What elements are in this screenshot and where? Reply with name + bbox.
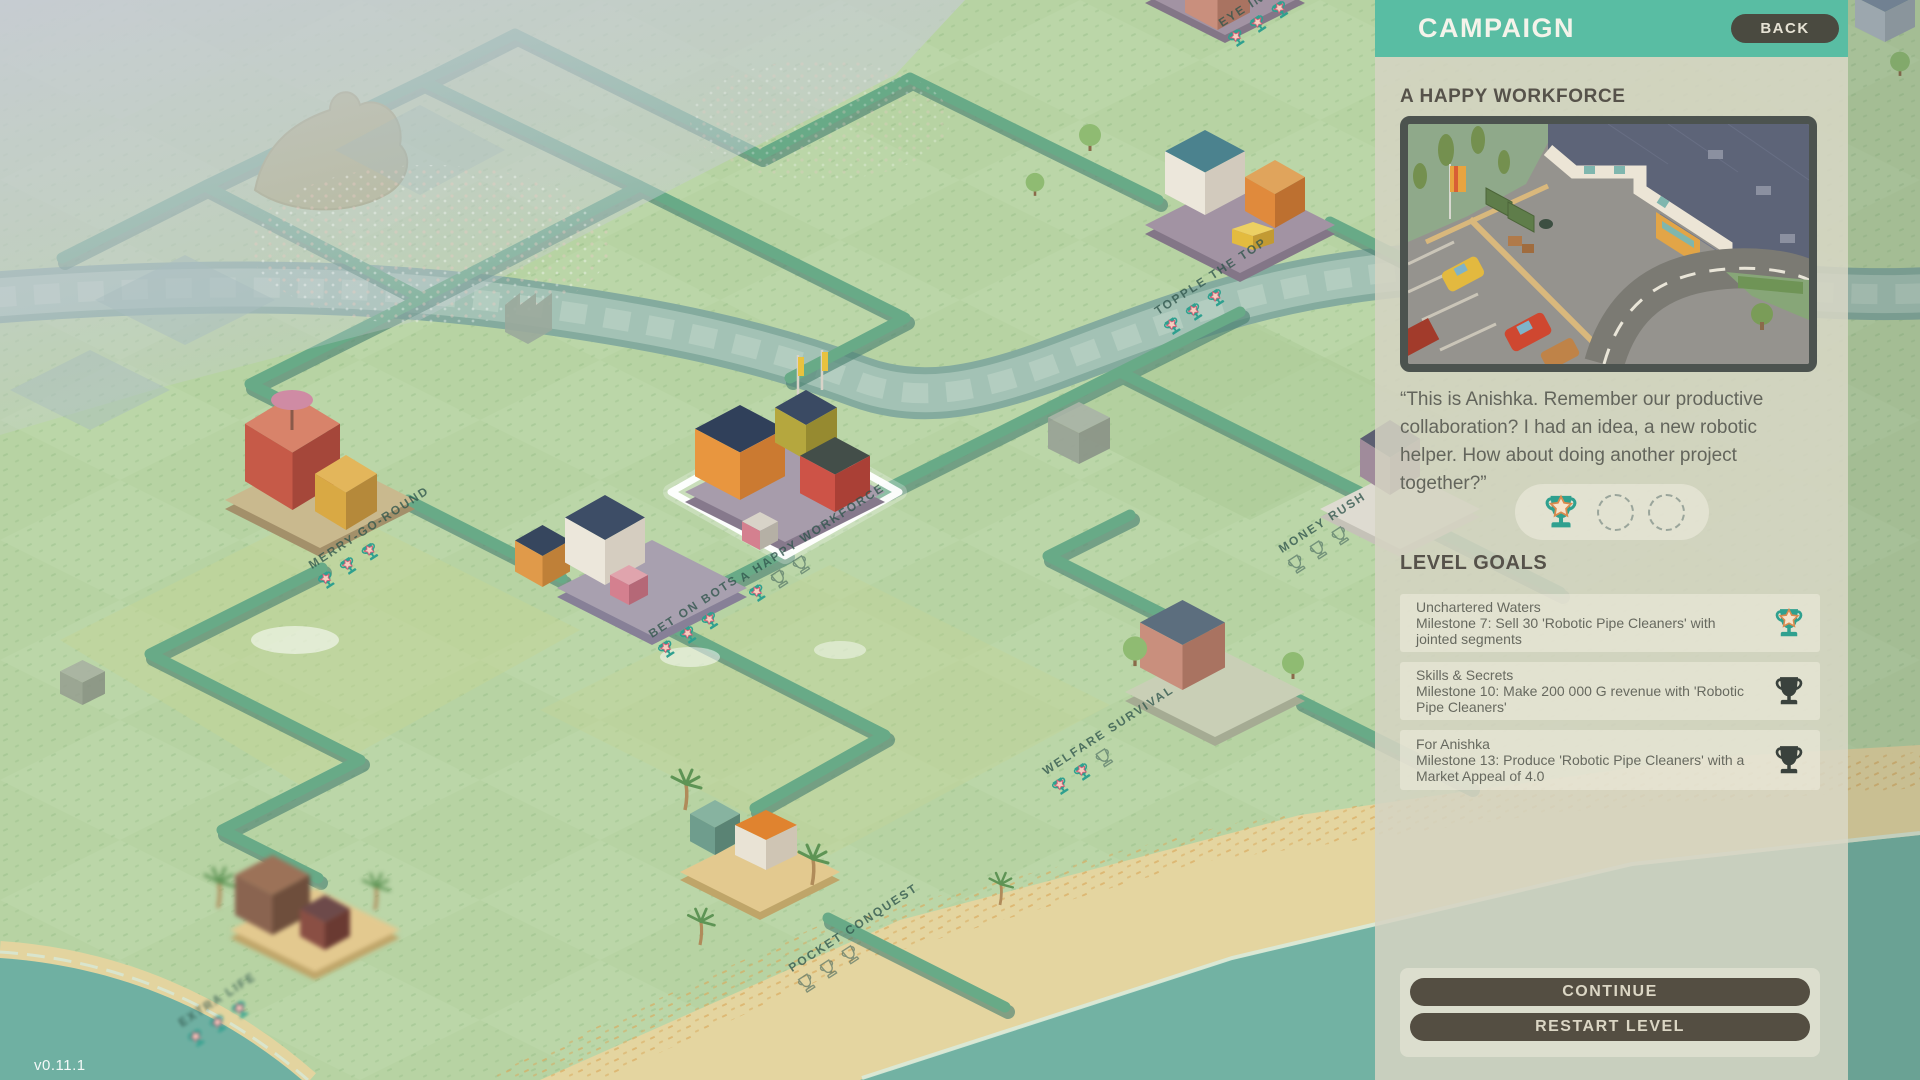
goal-trophy-icon <box>1770 741 1808 779</box>
goal-card: Skills & Secrets Milestone 10: Make 200 … <box>1400 662 1820 720</box>
goal-description: Milestone 13: Produce 'Robotic Pipe Clea… <box>1416 752 1760 784</box>
level-preview-image <box>1400 116 1817 372</box>
goal-description: Milestone 10: Make 200 000 G revenue wit… <box>1416 683 1760 715</box>
goal-description: Milestone 7: Sell 30 'Robotic Pipe Clean… <box>1416 615 1760 647</box>
goal-title: Skills & Secrets <box>1416 667 1760 683</box>
level-title: A HAPPY WORKFORCE <box>1400 86 1626 108</box>
campaign-panel: CAMPAIGN BACK A HAPPY WORKFORCE <box>1375 0 1848 1080</box>
trophy-empty-slot <box>1648 494 1685 531</box>
goal-card: Unchartered Waters Milestone 7: Sell 30 … <box>1400 594 1820 652</box>
level-goals-heading: LEVEL GOALS <box>1400 552 1547 575</box>
trophy-empty-slot <box>1597 494 1634 531</box>
level-trophy-progress <box>1515 484 1709 540</box>
continue-button[interactable]: CONTINUE <box>1410 978 1810 1006</box>
version-label: v0.11.1 <box>34 1057 86 1074</box>
trophy-earned-icon <box>1539 490 1583 534</box>
back-button[interactable]: BACK <box>1731 14 1839 43</box>
goal-trophy-icon <box>1770 672 1808 710</box>
campaign-title: CAMPAIGN <box>1418 13 1575 44</box>
restart-level-button[interactable]: RESTART LEVEL <box>1410 1013 1810 1041</box>
goal-title: For Anishka <box>1416 736 1760 752</box>
goal-card: For Anishka Milestone 13: Produce 'Robot… <box>1400 730 1820 790</box>
character-quote: “This is Anishka. Remember our productiv… <box>1400 386 1814 498</box>
action-buttons-card: CONTINUE RESTART LEVEL <box>1400 968 1820 1057</box>
game-screen: EYE IN THE SKY TOPPLE THE TOP MERRY-GO-R… <box>0 0 1920 1080</box>
campaign-panel-header: CAMPAIGN BACK <box>1375 0 1848 57</box>
goal-trophy-icon <box>1770 604 1808 642</box>
goal-title: Unchartered Waters <box>1416 599 1760 615</box>
screen-edge-dim <box>1848 0 1920 1080</box>
